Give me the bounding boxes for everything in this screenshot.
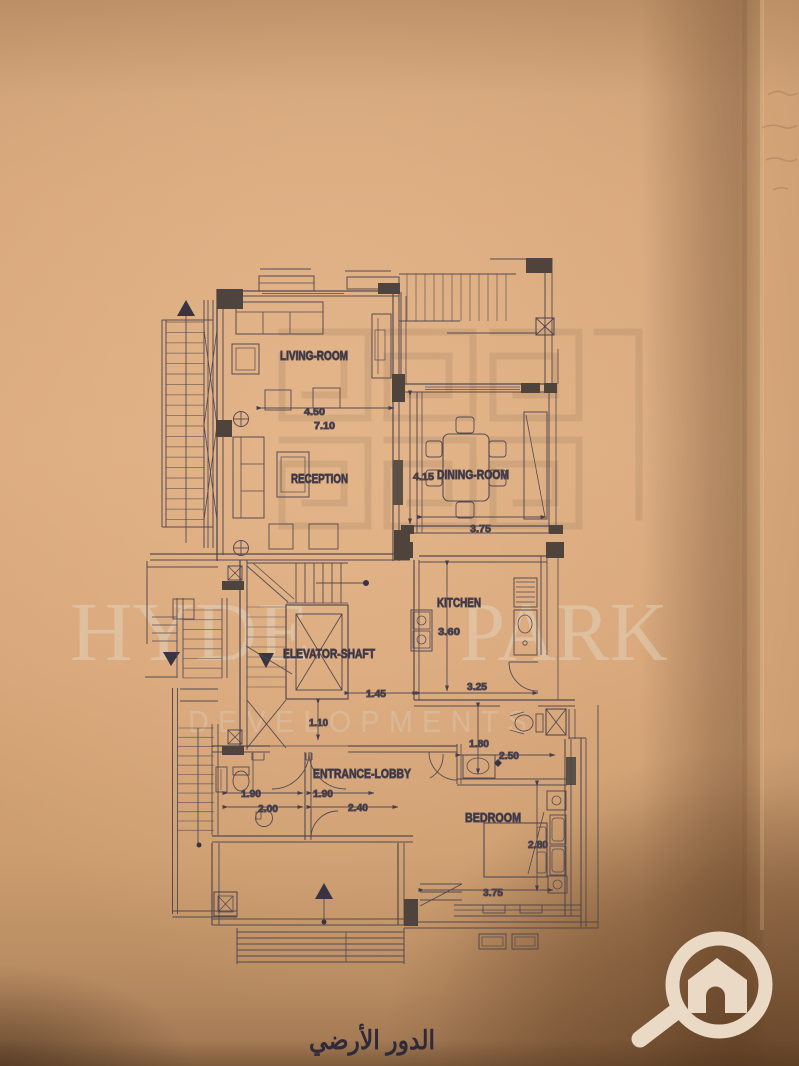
svg-text:ELEVATOR-SHAFT: ELEVATOR-SHAFT — [283, 646, 375, 661]
svg-text:2.40: 2.40 — [348, 802, 368, 814]
svg-text:RECEPTION: RECEPTION — [291, 471, 348, 486]
svg-text:ENTRANCE-LOBBY: ENTRANCE-LOBBY — [313, 766, 411, 781]
svg-text:4.15: 4.15 — [413, 471, 434, 483]
svg-text:BEDROOM: BEDROOM — [465, 810, 521, 825]
svg-text:3.75: 3.75 — [470, 523, 491, 535]
svg-text:2.00: 2.00 — [258, 803, 278, 815]
svg-text:LIVING-ROOM: LIVING-ROOM — [280, 348, 348, 363]
svg-text:1.90: 1.90 — [313, 788, 333, 800]
svg-text:4.50: 4.50 — [304, 406, 325, 418]
svg-text:3.60: 3.60 — [438, 626, 460, 638]
svg-text:KITCHEN: KITCHEN — [437, 596, 481, 610]
svg-text:PARK: PARK — [460, 586, 668, 679]
svg-text:1.45: 1.45 — [366, 688, 386, 700]
svg-text:HYDE: HYDE — [70, 586, 310, 679]
svg-text:1.10: 1.10 — [309, 717, 328, 729]
svg-text:7.10: 7.10 — [314, 420, 335, 432]
svg-text:2.50: 2.50 — [499, 750, 519, 762]
svg-text:الدور الأرضي: الدور الأرضي — [309, 1023, 435, 1056]
svg-text:3.25: 3.25 — [467, 681, 487, 693]
svg-text:1.90: 1.90 — [241, 788, 261, 800]
svg-text:DINING-ROOM: DINING-ROOM — [437, 467, 509, 482]
svg-text:1.80: 1.80 — [469, 738, 489, 750]
